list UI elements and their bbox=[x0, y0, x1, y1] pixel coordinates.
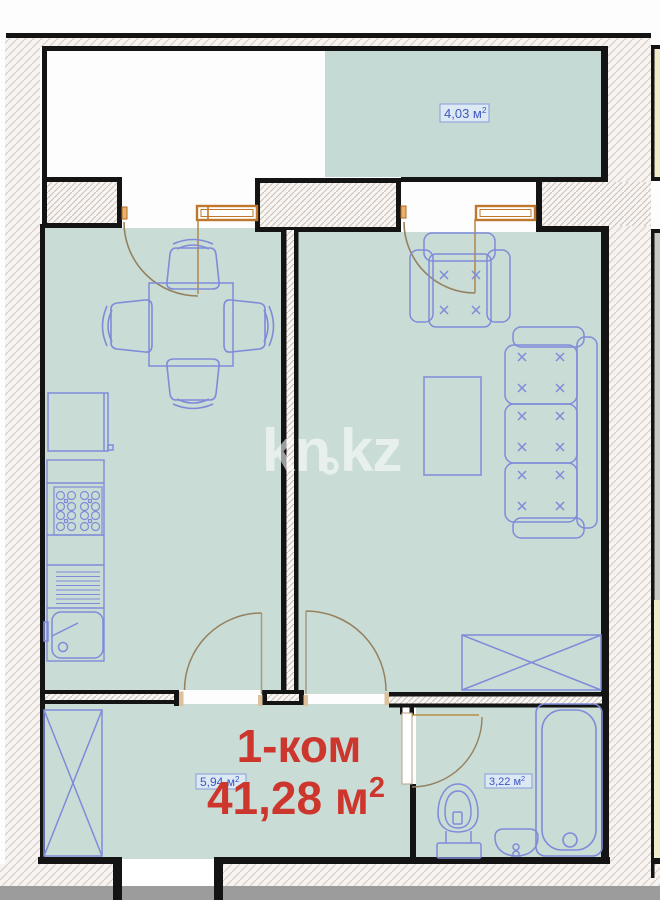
svg-text:41,28 м2: 41,28 м2 bbox=[207, 772, 385, 824]
svg-text:kn: kn bbox=[262, 417, 330, 484]
svg-text:4,03 м2: 4,03 м2 bbox=[444, 105, 487, 121]
svg-text:1-ком: 1-ком bbox=[237, 720, 362, 772]
svg-text:kz: kz bbox=[340, 417, 401, 484]
svg-text:3,22 м2: 3,22 м2 bbox=[489, 774, 525, 788]
